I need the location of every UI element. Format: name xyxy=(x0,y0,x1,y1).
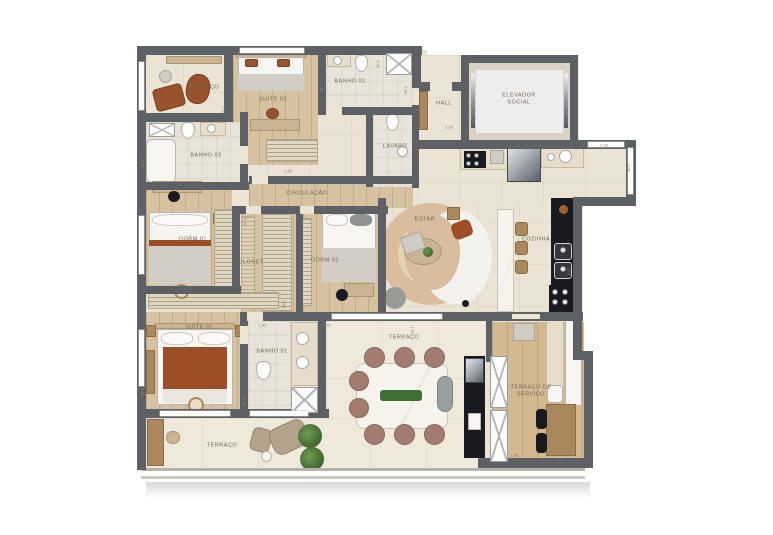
shadow xyxy=(146,482,590,498)
room-label-hall: HALL xyxy=(436,100,452,107)
sink xyxy=(559,150,572,163)
wall-circ-bottom xyxy=(240,206,388,214)
dresser xyxy=(146,350,155,394)
door xyxy=(246,206,261,214)
plant xyxy=(298,424,322,448)
window xyxy=(139,62,144,110)
desk-chair xyxy=(168,191,180,202)
sliding-panel xyxy=(490,356,508,408)
wall-dorm02-right xyxy=(378,198,386,320)
dimension-label: 3.25 xyxy=(242,398,247,406)
dining-chair xyxy=(349,398,369,418)
dining-chair xyxy=(364,347,385,368)
wall-terraco-bottom xyxy=(137,113,233,122)
room-label-suite-02: SUÍTE 02 xyxy=(259,96,287,103)
room-label-banho-02: BANHO 02 xyxy=(334,78,365,85)
pillow xyxy=(161,332,193,345)
shower xyxy=(386,53,412,75)
door xyxy=(232,190,240,206)
side-table xyxy=(261,451,272,462)
dimension-label: 5.02 xyxy=(323,323,331,328)
oven xyxy=(554,243,572,260)
centerpiece xyxy=(380,390,422,401)
floor-plan: TERRAÇOSUÍTE 02BANHO 02HALLELEVADOR SOCI… xyxy=(0,0,773,535)
shower xyxy=(291,387,318,413)
railing xyxy=(141,476,585,479)
sink xyxy=(207,124,216,133)
room-label-cozinha: COZINHA xyxy=(522,236,550,243)
pillow xyxy=(198,332,230,345)
pillow xyxy=(326,214,348,226)
wall-suite-banho02 xyxy=(318,50,326,114)
wall-banho01-right xyxy=(318,318,326,414)
wall-lavabo-left xyxy=(366,107,373,187)
dining-chair xyxy=(394,424,415,445)
wall-dorm01-bottom xyxy=(137,286,241,294)
room-label-banho-01: BANHO 01 xyxy=(256,348,287,355)
bar-item xyxy=(468,413,481,430)
service-counter xyxy=(546,320,564,388)
shelf xyxy=(166,56,222,64)
bed-blanket xyxy=(322,248,376,282)
door xyxy=(240,146,248,164)
dimension-label: 3.13 xyxy=(141,388,146,396)
door xyxy=(240,326,248,344)
room-label-banho-03: BANHO 03 xyxy=(190,152,221,159)
room-label-circulacao: CIRCULAÇÃO xyxy=(286,190,327,197)
dining-chair xyxy=(424,424,445,445)
island-counter xyxy=(497,209,514,312)
dimension-label: 3.08 xyxy=(627,164,632,172)
room-label-closet: CLOSET xyxy=(238,259,263,266)
desk-chair xyxy=(266,108,279,119)
window xyxy=(139,216,144,274)
burner xyxy=(474,161,479,166)
dining-chair xyxy=(394,347,415,368)
dimension-label: 1.95 xyxy=(320,84,325,92)
burner xyxy=(466,153,471,158)
elevator-door-right xyxy=(564,73,568,128)
sink xyxy=(296,332,309,345)
dimension-label: 2.88 xyxy=(282,300,287,308)
room-label-suite-01: SUÍTE 01 xyxy=(185,324,213,331)
desk xyxy=(344,283,374,297)
sliding-panel xyxy=(490,410,508,462)
desk xyxy=(250,119,300,131)
elevator-door-left xyxy=(471,73,475,128)
room-label-dorm-01: DORM 01 xyxy=(179,236,207,243)
room-label-terraco-bottom: TERRAÇO xyxy=(207,442,237,449)
console xyxy=(419,91,428,130)
burner xyxy=(562,299,568,305)
dining-chair xyxy=(424,347,445,368)
closet-shelves xyxy=(241,216,255,300)
shower xyxy=(149,123,175,137)
dimension-label: 5.01 xyxy=(567,268,572,276)
room-label-dorm-02: DORM 02 xyxy=(311,257,339,264)
wall-circ-top xyxy=(249,176,414,184)
faucet xyxy=(547,153,555,161)
nightstand xyxy=(146,325,156,337)
dining-armchair xyxy=(437,376,453,412)
sink xyxy=(333,56,342,65)
wall-dorm02-left xyxy=(296,210,303,314)
service-table xyxy=(546,404,576,456)
bed-blanket xyxy=(149,246,211,285)
ironing-board xyxy=(513,323,535,341)
pillow xyxy=(152,214,208,226)
room-label-terraco-main: TERRAÇO xyxy=(389,334,419,341)
wall-right-mid xyxy=(573,197,582,358)
stool xyxy=(515,222,528,236)
fridge xyxy=(507,145,541,182)
door xyxy=(512,314,540,319)
stool xyxy=(515,260,528,274)
pouf xyxy=(384,287,406,309)
wardrobe xyxy=(214,209,233,288)
window xyxy=(250,411,308,416)
room-label-terraco-servico: TERRAÇO DE SERVIÇO xyxy=(509,385,553,400)
dimension-label: 3.53 xyxy=(141,159,146,167)
pillow xyxy=(277,59,290,67)
service-chair xyxy=(536,409,547,429)
dimension-label: 2.55 xyxy=(284,169,292,174)
bathtub xyxy=(146,139,176,183)
burner xyxy=(474,153,479,158)
bed-blanket xyxy=(238,74,304,91)
room-label-lavabo: LAVABO xyxy=(383,143,407,150)
door xyxy=(247,312,263,321)
pillow xyxy=(350,214,372,226)
room-label-estar: ESTAR xyxy=(415,216,435,223)
wall-right-step xyxy=(573,197,635,206)
dimension-label: 2.38 xyxy=(222,106,227,114)
dimension-label: 5.30 xyxy=(243,218,248,226)
door xyxy=(300,206,314,214)
dimension-label: 1.50 xyxy=(445,125,453,130)
wall-right-lower xyxy=(584,351,593,468)
room-label-terraco-top: TERRAÇO xyxy=(189,84,219,91)
decor xyxy=(559,205,568,214)
dining-chair xyxy=(349,371,369,391)
window xyxy=(139,330,144,386)
burner xyxy=(466,161,471,166)
door xyxy=(252,176,268,184)
pillow xyxy=(245,59,258,67)
door xyxy=(412,88,419,105)
dimension-label: 2.60 xyxy=(404,86,409,94)
tv xyxy=(465,358,484,383)
floor-circulacao xyxy=(249,184,413,208)
desk-chair xyxy=(336,289,348,301)
floor-lamp xyxy=(462,300,469,307)
dimension-label: 1.82 xyxy=(510,453,518,458)
window xyxy=(240,48,304,53)
side-table xyxy=(447,207,460,220)
burner xyxy=(552,299,558,305)
appliance xyxy=(490,150,504,164)
room-label-elevador-social: ELEVADOR SOCIAL xyxy=(498,93,540,108)
window xyxy=(160,411,230,416)
plant xyxy=(423,247,433,257)
entry-door xyxy=(430,82,452,91)
service-chair xyxy=(536,433,547,453)
wardrobe xyxy=(266,139,318,162)
dimension-label: 1.92 xyxy=(411,326,416,334)
dimension-label: 1.60 xyxy=(258,323,266,328)
railing xyxy=(141,468,585,471)
burner xyxy=(552,289,558,295)
desk-chair xyxy=(166,431,180,444)
dimension-label: 9.28 xyxy=(600,143,608,148)
sink xyxy=(296,356,309,369)
wardrobe xyxy=(148,292,279,309)
side-table xyxy=(159,70,172,83)
sliding-glass-door xyxy=(332,314,442,319)
dining-chair xyxy=(364,424,385,445)
desk xyxy=(147,419,164,466)
dimension-label: 2.40 xyxy=(376,60,381,68)
door xyxy=(326,107,342,115)
burner xyxy=(562,289,568,295)
